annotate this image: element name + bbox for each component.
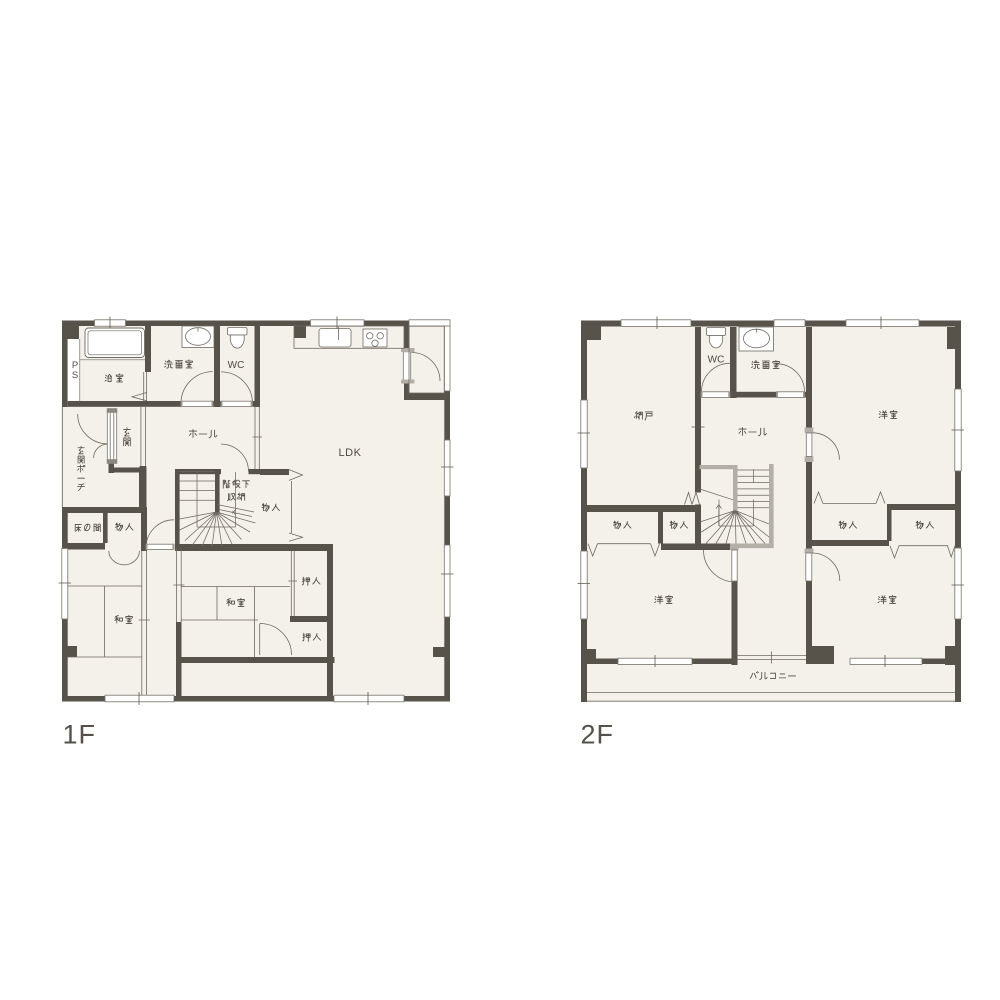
svg-text:1F: 1F: [63, 720, 97, 750]
svg-text:S: S: [72, 370, 78, 381]
svg-text:WC: WC: [708, 355, 725, 366]
svg-text:2F: 2F: [581, 720, 615, 750]
svg-text:WC: WC: [228, 360, 245, 371]
svg-text:LDK: LDK: [339, 447, 362, 459]
